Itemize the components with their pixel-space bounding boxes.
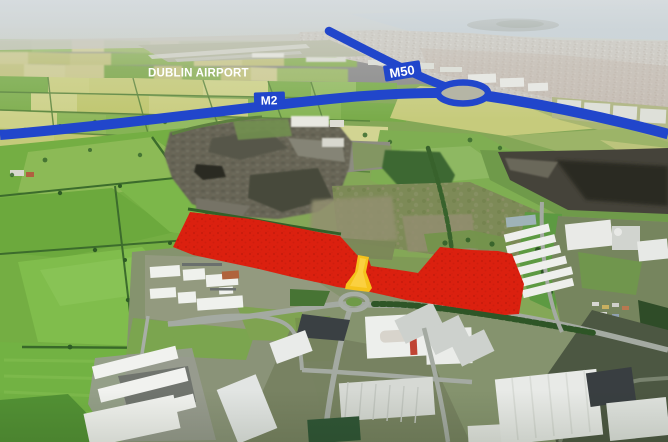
svg-text:DUBLIN AIRPORT: DUBLIN AIRPORT (148, 68, 249, 80)
svg-text:M2: M2 (260, 93, 277, 108)
